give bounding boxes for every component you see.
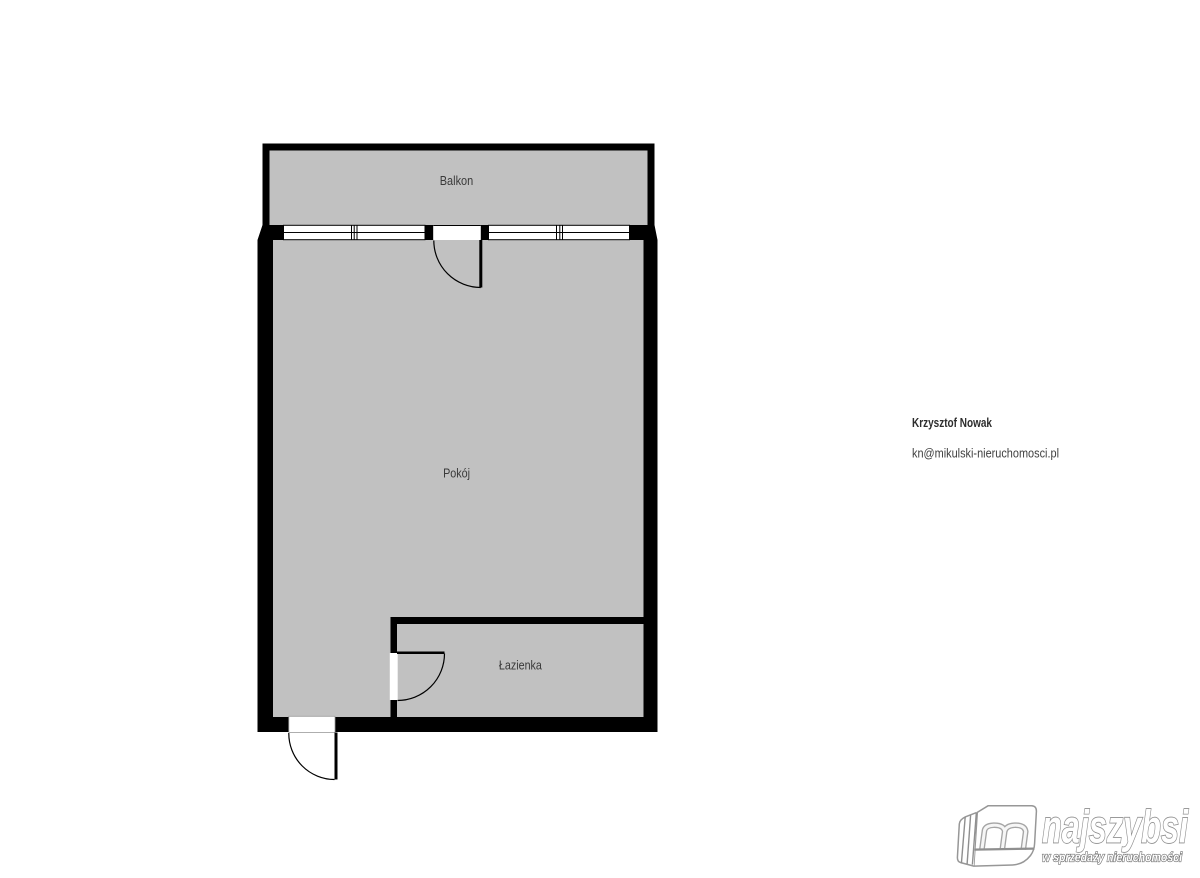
svg-text:Pokój: Pokój bbox=[443, 467, 470, 481]
svg-text:Balkon: Balkon bbox=[440, 174, 474, 188]
svg-text:Krzysztof Nowak: Krzysztof Nowak bbox=[912, 415, 993, 430]
svg-text:kn@mikulski-nieruchomosci.pl: kn@mikulski-nieruchomosci.pl bbox=[912, 446, 1059, 461]
svg-text:w sprzedaży nieruchomości: w sprzedaży nieruchomości bbox=[1042, 851, 1182, 865]
svg-text:najszybsi: najszybsi bbox=[1042, 801, 1189, 853]
svg-text:Łazienka: Łazienka bbox=[499, 659, 542, 673]
